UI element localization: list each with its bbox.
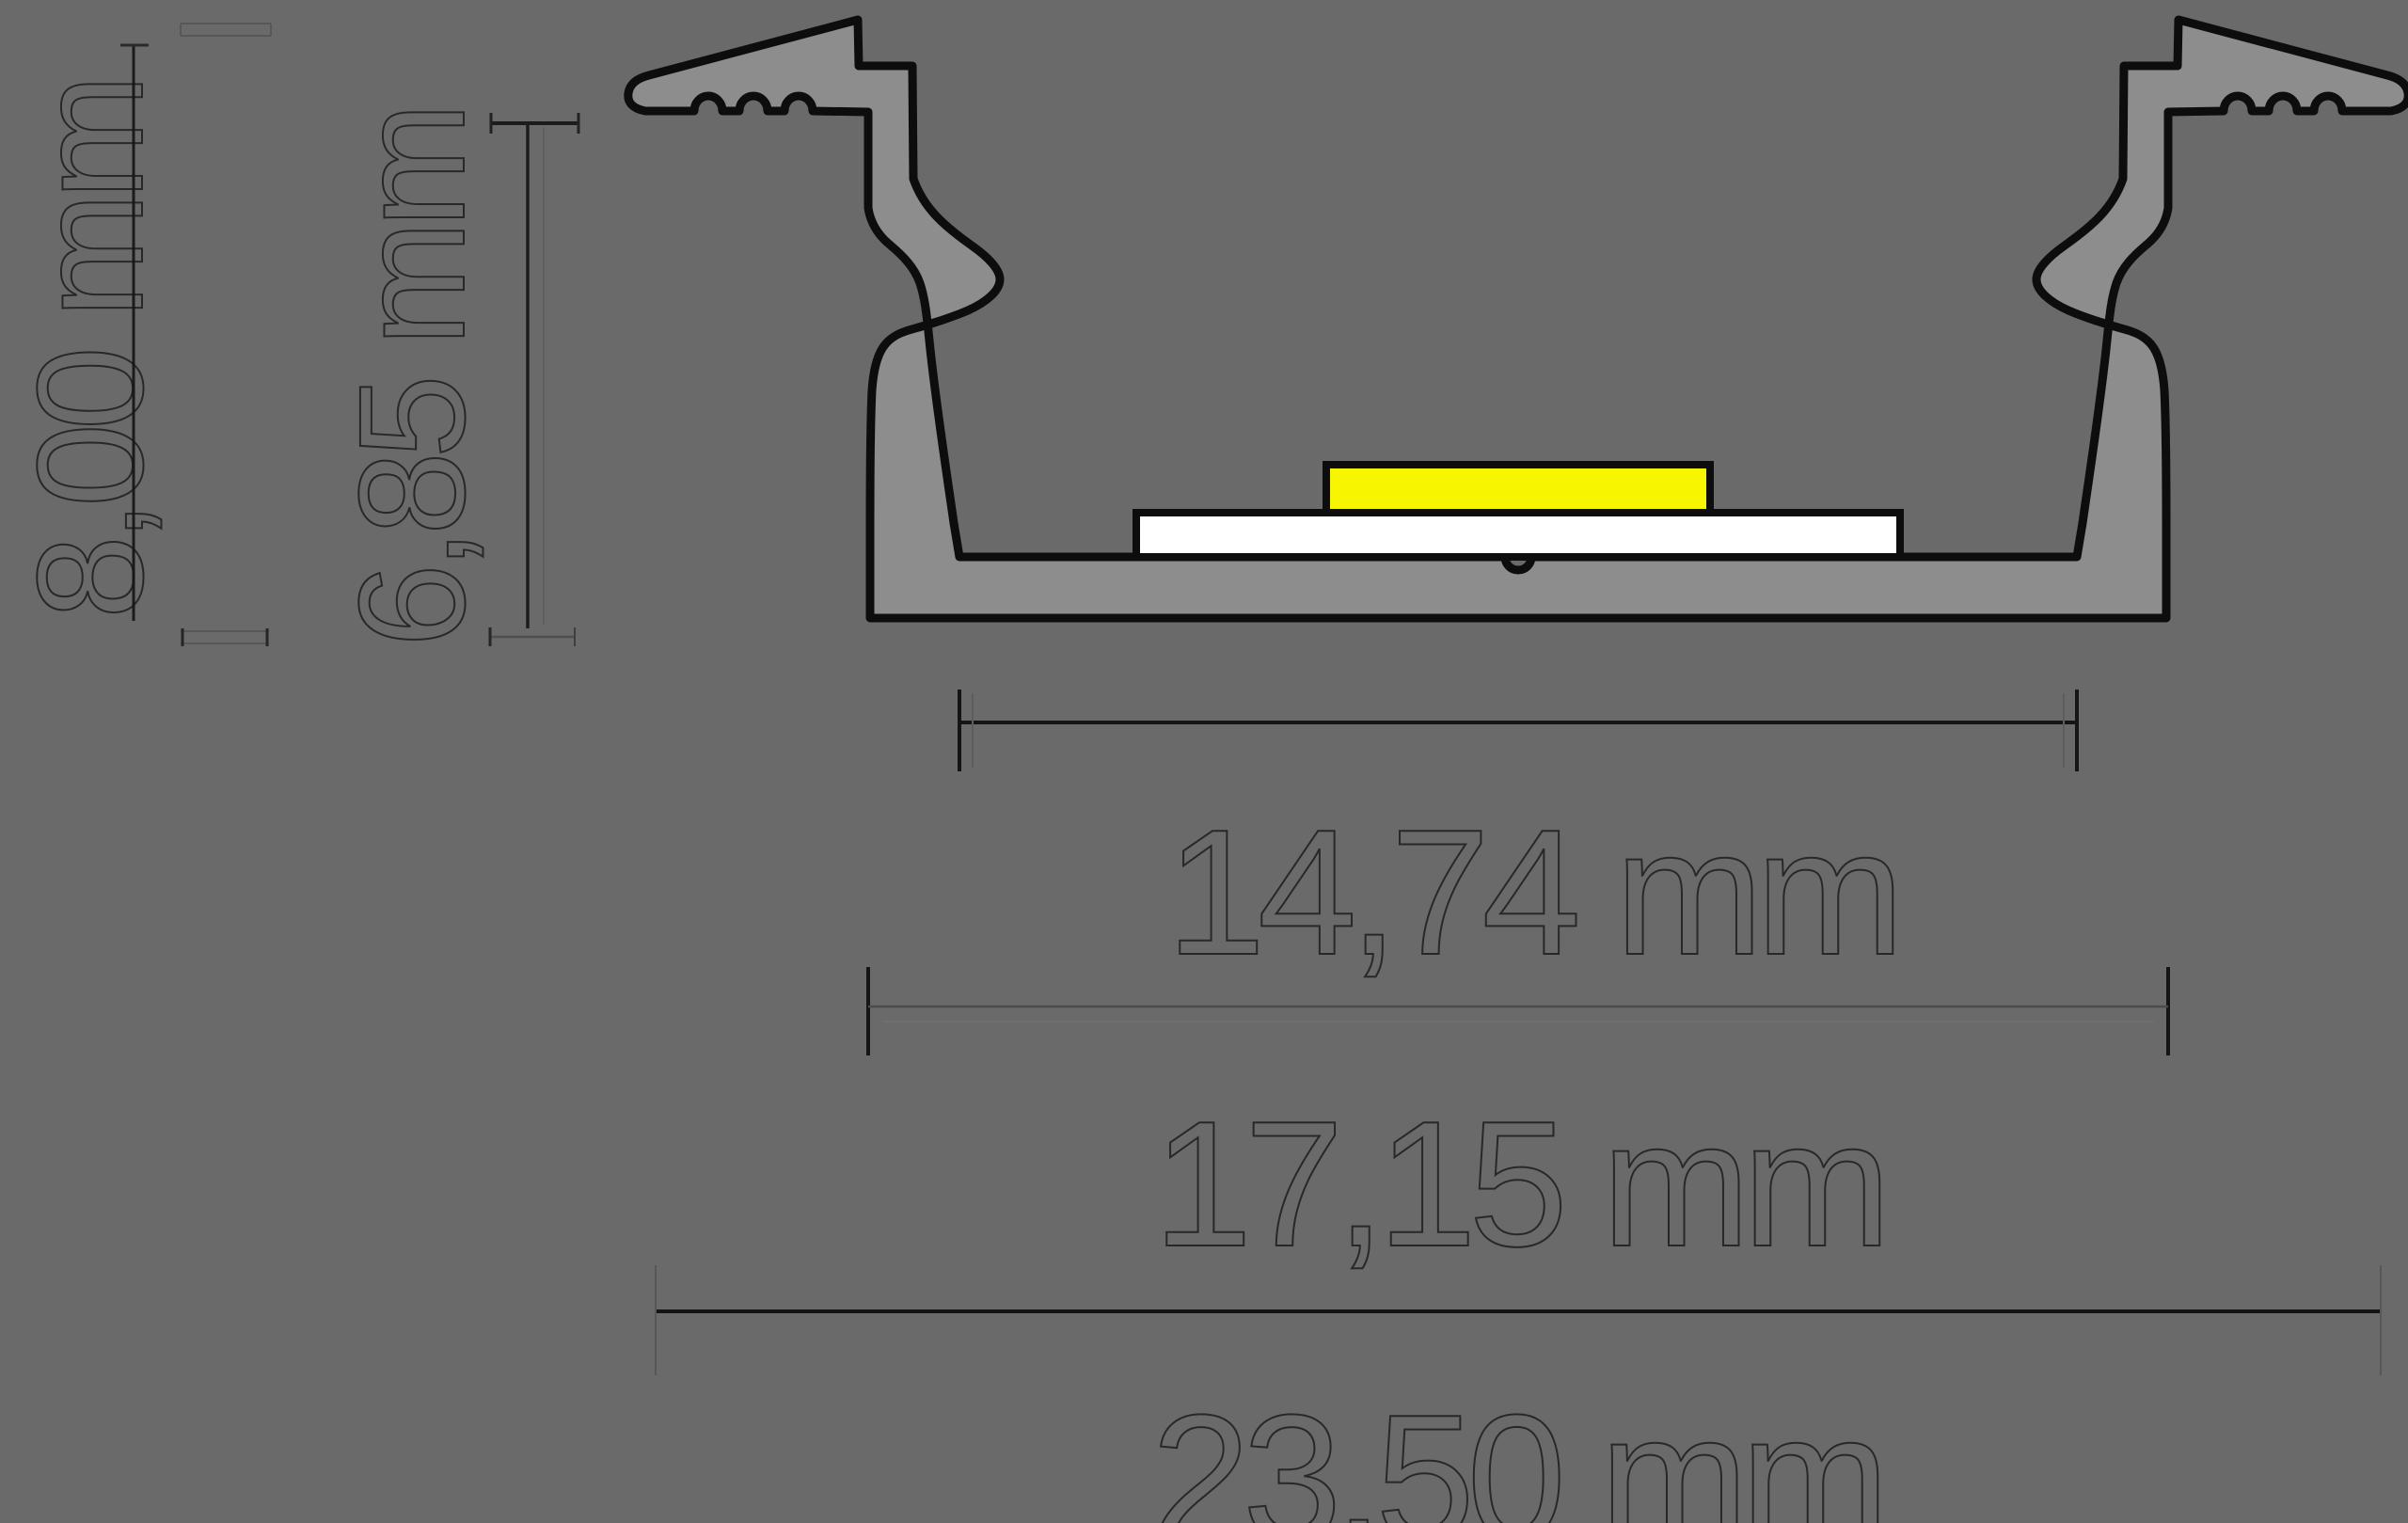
pcb: [1136, 513, 1900, 557]
dimension-label-width-opening: 14,74 mm: [1166, 790, 1896, 995]
dimension-width-opening-lines: [959, 690, 2077, 771]
dimension-depth-inner-lines: [489, 113, 578, 646]
led-strip: [1326, 465, 1710, 513]
dimension-label-width-base: 17,15 mm: [1153, 1082, 1883, 1287]
dimension-label-depth-inner: 6,85 mm: [325, 109, 499, 647]
dimension-label-height-total: 8,00 mm: [4, 81, 177, 619]
technical-drawing-canvas: 8,00 mm 6,85 mm 14,74 mm 17,15 mm 23,50 …: [0, 0, 2408, 1523]
dimension-label-width-total: 23,50 mm: [1151, 1375, 1881, 1523]
